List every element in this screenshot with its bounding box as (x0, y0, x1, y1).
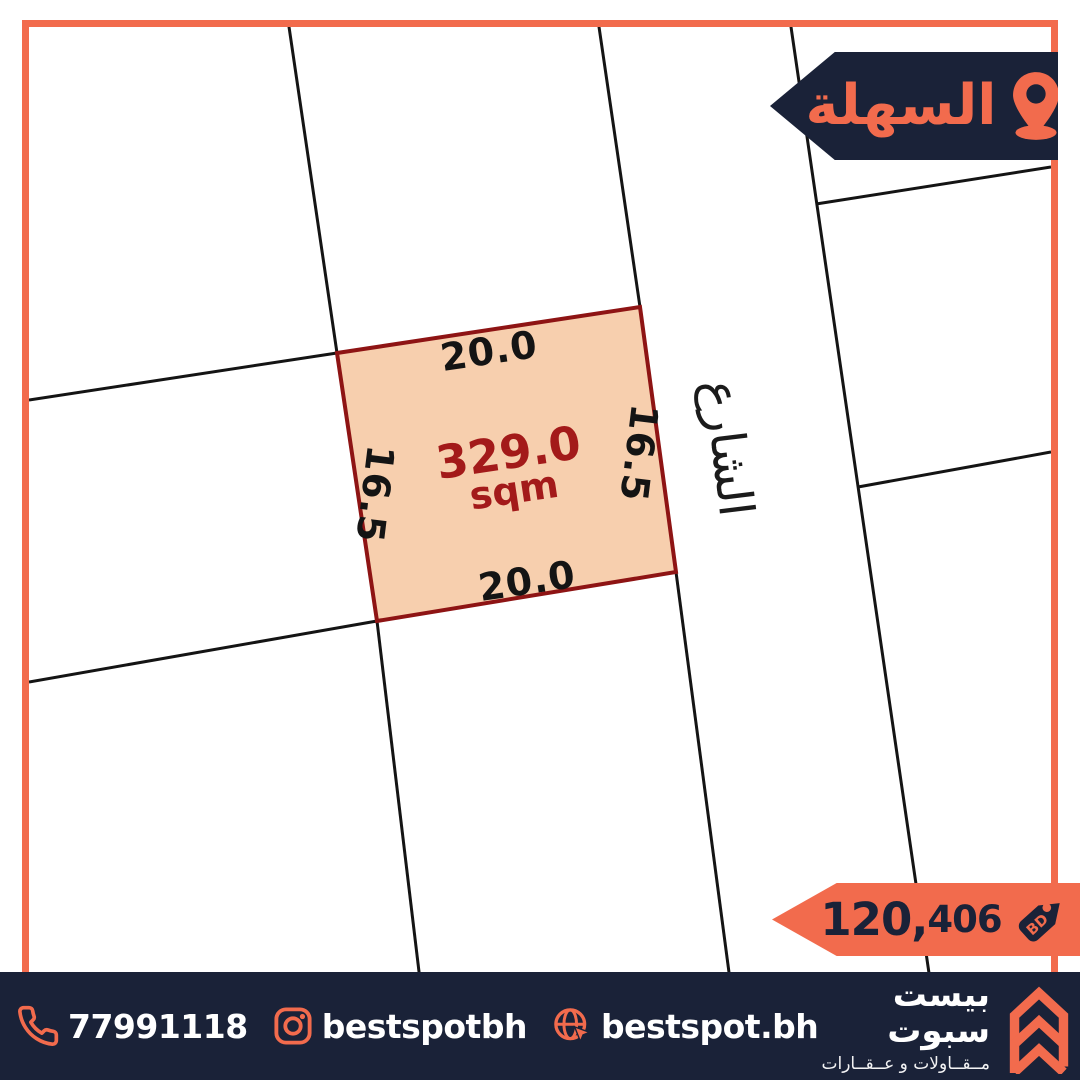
instagram-icon (272, 1005, 314, 1047)
price-amount-major: 120, (820, 893, 927, 946)
brand-block: بيست سبوت مــقــاولات و عــقــارات (818, 978, 990, 1073)
brand-name: بيست سبوت (818, 978, 990, 1049)
street-left-line (598, 20, 640, 307)
location-badge-label: السهلة (806, 78, 997, 134)
instagram-handle: bestspotbh (322, 1007, 527, 1046)
street-right-line (790, 20, 930, 980)
price-amount-minor: 406 (927, 898, 1001, 941)
parcel-line (288, 20, 337, 353)
phone-number: 77991118 (68, 1007, 248, 1046)
parcel-line (377, 621, 420, 980)
parcel-line (816, 167, 1051, 204)
parcel-line (858, 452, 1051, 487)
brand-tagline: مــقــاولات و عــقــارات (818, 1054, 990, 1074)
website-url: bestspot.bh (601, 1007, 818, 1046)
price-tag-icon: BD (1010, 889, 1072, 951)
street-left-line (676, 572, 730, 980)
brand-logo-icon (1004, 978, 1074, 1074)
price-badge: 120, 406 BD (772, 883, 1080, 956)
parcel-line (29, 353, 337, 400)
globe-cursor-icon (551, 1005, 593, 1047)
parcel-line (29, 621, 377, 682)
phone-icon (16, 1004, 60, 1048)
footer-bar: 77991118 bestspotbh bestspot.bh بيست سبو… (0, 972, 1080, 1080)
location-pin-icon (1007, 69, 1065, 143)
